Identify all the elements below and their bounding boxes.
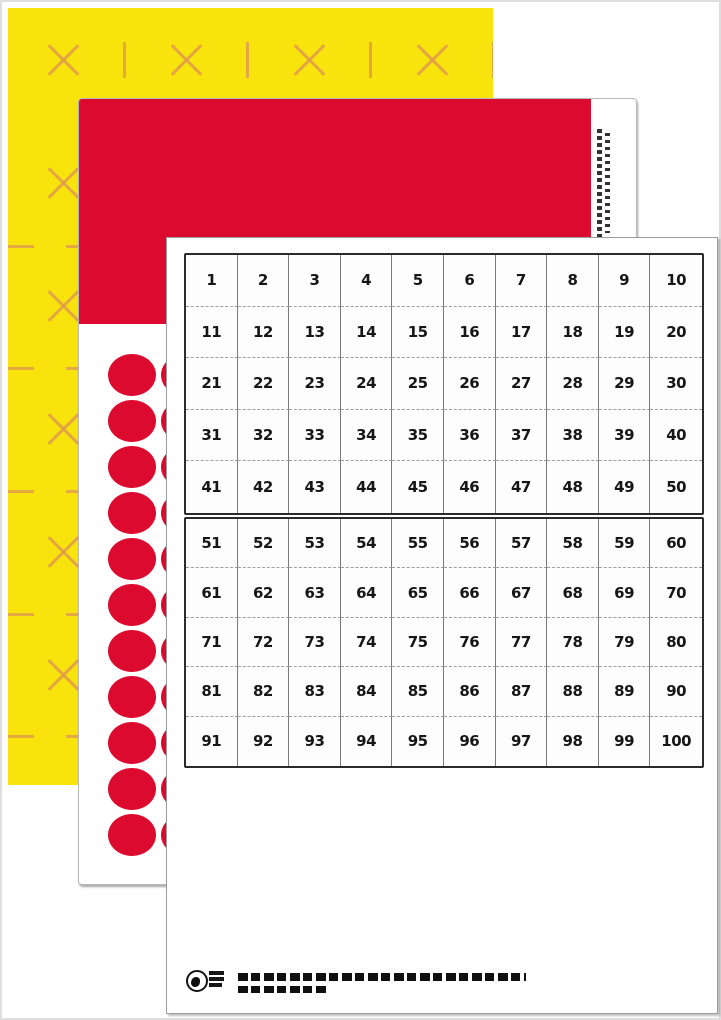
number-sticker-cell: 61 xyxy=(186,568,238,617)
number-sticker-cell: 34 xyxy=(341,410,393,462)
number-sticker-cell: 48 xyxy=(547,461,599,513)
number-sticker-cell: 4 xyxy=(341,255,393,307)
number-sticker-cell: 28 xyxy=(547,358,599,410)
fine-print-line xyxy=(238,986,326,993)
number-sticker-cell: 55 xyxy=(392,519,444,568)
number-sticker-cell: 40 xyxy=(650,410,702,462)
number-sticker-cell: 92 xyxy=(238,717,290,766)
number-sticker-cell: 2 xyxy=(238,255,290,307)
hundred-chart-bottom-block: 5152535455565758596061626364656667686970… xyxy=(184,517,704,768)
red-dot-sticker xyxy=(108,538,156,580)
cut-mark-x-icon xyxy=(46,289,80,323)
number-sticker-cell: 50 xyxy=(650,461,702,513)
cut-mark-x-icon xyxy=(415,43,449,77)
number-sticker-cell: 66 xyxy=(444,568,496,617)
number-sticker-cell: 71 xyxy=(186,618,238,667)
number-sticker-cell: 51 xyxy=(186,519,238,568)
number-sticker-cell: 20 xyxy=(650,307,702,359)
red-dot-sticker xyxy=(108,676,156,718)
number-sticker-cell: 46 xyxy=(444,461,496,513)
number-sticker-cell: 57 xyxy=(496,519,548,568)
number-sticker-cell: 26 xyxy=(444,358,496,410)
cut-mark-line-icon xyxy=(246,42,249,78)
number-sticker-cell: 11 xyxy=(186,307,238,359)
number-sticker-cell: 81 xyxy=(186,667,238,716)
number-sticker-cell: 62 xyxy=(238,568,290,617)
number-sticker-cell: 88 xyxy=(547,667,599,716)
number-sticker-cell: 70 xyxy=(650,568,702,617)
number-sticker-cell: 24 xyxy=(341,358,393,410)
number-sticker-cell: 83 xyxy=(289,667,341,716)
publisher-logo-text xyxy=(209,977,224,981)
number-sticker-cell: 49 xyxy=(599,461,651,513)
number-sticker-cell: 17 xyxy=(496,307,548,359)
number-sticker-cell: 36 xyxy=(444,410,496,462)
number-sticker-cell: 90 xyxy=(650,667,702,716)
number-sticker-cell: 64 xyxy=(341,568,393,617)
cut-mark-x-icon xyxy=(46,43,80,77)
number-sticker-cell: 75 xyxy=(392,618,444,667)
number-sticker-cell: 91 xyxy=(186,717,238,766)
number-sticker-cell: 68 xyxy=(547,568,599,617)
number-sticker-cell: 23 xyxy=(289,358,341,410)
cut-mark-x-icon xyxy=(46,412,80,446)
number-sticker-cell: 99 xyxy=(599,717,651,766)
number-sticker-cell: 13 xyxy=(289,307,341,359)
number-sticker-cell: 31 xyxy=(186,410,238,462)
cut-mark-x-icon xyxy=(46,658,80,692)
number-sticker-cell: 94 xyxy=(341,717,393,766)
number-sticker-cell: 84 xyxy=(341,667,393,716)
number-sticker-cell: 16 xyxy=(444,307,496,359)
hundred-chart-top-block: 1234567891011121314151617181920212223242… xyxy=(184,253,704,515)
number-sticker-cell: 25 xyxy=(392,358,444,410)
number-sticker-cell: 33 xyxy=(289,410,341,462)
red-dot-sticker xyxy=(108,630,156,672)
number-sticker-cell: 45 xyxy=(392,461,444,513)
cut-mark-x-icon xyxy=(46,166,80,200)
number-sticker-cell: 63 xyxy=(289,568,341,617)
red-dot-sticker xyxy=(108,492,156,534)
number-sticker-cell: 22 xyxy=(238,358,290,410)
number-sticker-cell: 54 xyxy=(341,519,393,568)
number-sticker-cell: 87 xyxy=(496,667,548,716)
publisher-logo-text xyxy=(209,983,222,987)
number-sticker-cell: 82 xyxy=(238,667,290,716)
number-sticker-cell: 21 xyxy=(186,358,238,410)
number-sticker-cell: 97 xyxy=(496,717,548,766)
number-sticker-cell: 93 xyxy=(289,717,341,766)
number-sticker-cell: 47 xyxy=(496,461,548,513)
red-dot-sticker xyxy=(108,354,156,396)
number-sticker-cell: 52 xyxy=(238,519,290,568)
number-sticker-cell: 96 xyxy=(444,717,496,766)
number-sticker-cell: 41 xyxy=(186,461,238,513)
red-dot-sticker xyxy=(108,768,156,810)
number-sticker-cell: 18 xyxy=(547,307,599,359)
number-sticker-cell: 3 xyxy=(289,255,341,307)
cut-mark-x-icon xyxy=(292,43,326,77)
cut-mark-x-icon xyxy=(46,535,80,569)
vertical-fine-print xyxy=(605,133,610,233)
number-sticker-cell: 29 xyxy=(599,358,651,410)
number-sticker-cell: 72 xyxy=(238,618,290,667)
number-sticker-cell: 100 xyxy=(650,717,702,766)
cut-mark-line-icon xyxy=(123,42,126,78)
number-sticker-cell: 59 xyxy=(599,519,651,568)
number-sticker-cell: 89 xyxy=(599,667,651,716)
number-sticker-cell: 85 xyxy=(392,667,444,716)
number-sticker-cell: 6 xyxy=(444,255,496,307)
number-sticker-cell: 78 xyxy=(547,618,599,667)
number-sticker-cell: 15 xyxy=(392,307,444,359)
red-dot-sticker xyxy=(108,446,156,488)
publisher-logo-text xyxy=(209,971,224,975)
number-sticker-cell: 56 xyxy=(444,519,496,568)
number-sticker-cell: 43 xyxy=(289,461,341,513)
number-sticker-cell: 8 xyxy=(547,255,599,307)
number-sticker-cell: 67 xyxy=(496,568,548,617)
number-sticker-cell: 38 xyxy=(547,410,599,462)
vertical-fine-print xyxy=(597,129,602,237)
number-sticker-cell: 77 xyxy=(496,618,548,667)
number-sticker-cell: 58 xyxy=(547,519,599,568)
red-dot-sticker xyxy=(108,722,156,764)
number-sticker-cell: 42 xyxy=(238,461,290,513)
red-dot-sticker xyxy=(108,584,156,626)
number-sticker-cell: 10 xyxy=(650,255,702,307)
fine-print-line xyxy=(238,973,526,981)
number-sticker-cell: 53 xyxy=(289,519,341,568)
number-sticker-cell: 76 xyxy=(444,618,496,667)
number-sticker-cell: 95 xyxy=(392,717,444,766)
sticker-sheets-photo: 1234567891011121314151617181920212223242… xyxy=(0,0,721,1020)
number-sticker-cell: 9 xyxy=(599,255,651,307)
hundred-chart-sheet: 1234567891011121314151617181920212223242… xyxy=(166,237,718,1014)
number-sticker-cell: 86 xyxy=(444,667,496,716)
number-sticker-cell: 73 xyxy=(289,618,341,667)
number-sticker-cell: 27 xyxy=(496,358,548,410)
number-sticker-cell: 60 xyxy=(650,519,702,568)
number-sticker-cell: 44 xyxy=(341,461,393,513)
number-sticker-cell: 7 xyxy=(496,255,548,307)
number-sticker-cell: 19 xyxy=(599,307,651,359)
publisher-logo-icon xyxy=(186,970,208,992)
number-sticker-cell: 12 xyxy=(238,307,290,359)
number-sticker-cell: 69 xyxy=(599,568,651,617)
cut-mark-x-icon xyxy=(169,43,203,77)
cut-mark-line-icon xyxy=(492,42,493,78)
red-dot-sticker xyxy=(108,400,156,442)
number-sticker-cell: 37 xyxy=(496,410,548,462)
number-sticker-cell: 74 xyxy=(341,618,393,667)
number-sticker-cell: 80 xyxy=(650,618,702,667)
number-sticker-cell: 79 xyxy=(599,618,651,667)
number-sticker-cell: 98 xyxy=(547,717,599,766)
number-sticker-cell: 30 xyxy=(650,358,702,410)
number-sticker-cell: 14 xyxy=(341,307,393,359)
number-sticker-cell: 39 xyxy=(599,410,651,462)
number-sticker-cell: 65 xyxy=(392,568,444,617)
cut-mark-line-icon xyxy=(369,42,372,78)
number-sticker-cell: 32 xyxy=(238,410,290,462)
number-sticker-cell: 1 xyxy=(186,255,238,307)
number-sticker-cell: 35 xyxy=(392,410,444,462)
number-sticker-cell: 5 xyxy=(392,255,444,307)
red-dot-sticker xyxy=(108,814,156,856)
